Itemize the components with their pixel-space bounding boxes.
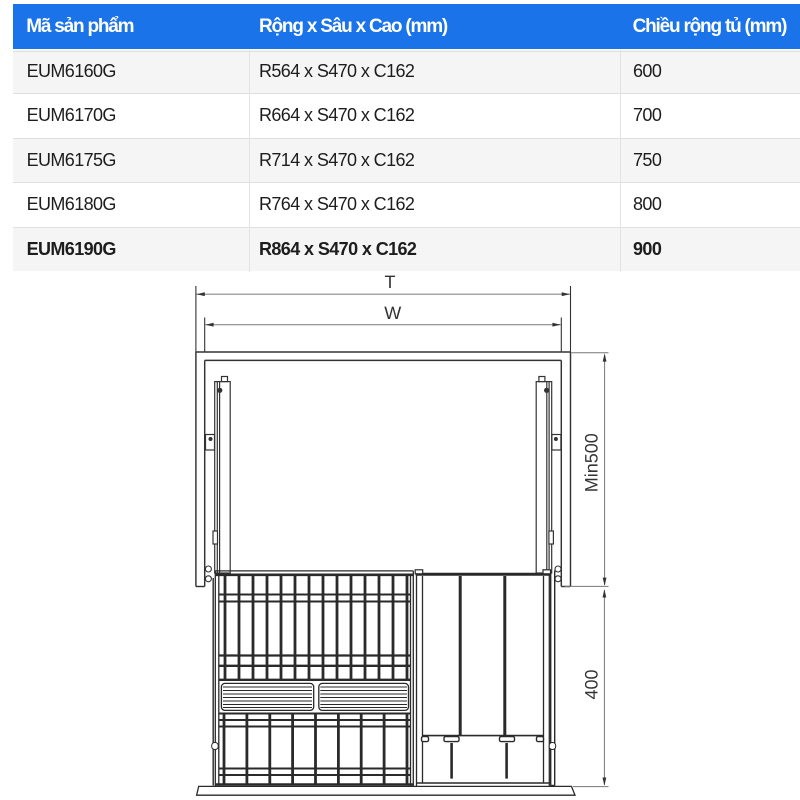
svg-text:T: T bbox=[385, 272, 396, 292]
svg-text:400: 400 bbox=[582, 669, 602, 699]
svg-text:W: W bbox=[384, 303, 401, 323]
svg-text:Min500: Min500 bbox=[582, 433, 602, 492]
